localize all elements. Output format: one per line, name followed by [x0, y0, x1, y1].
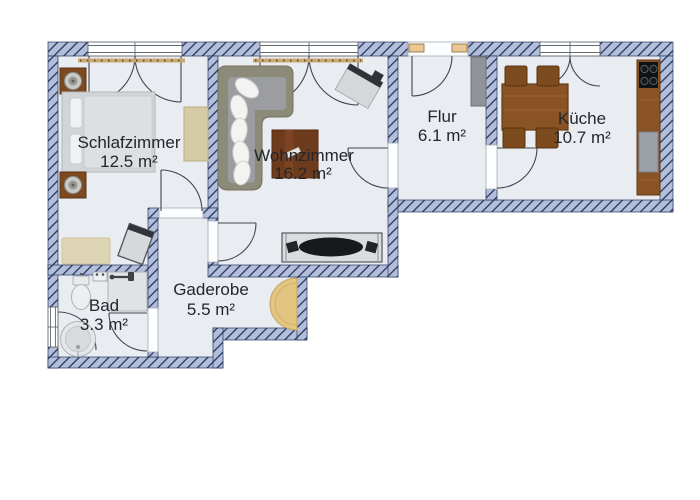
table-lamp-center [72, 80, 75, 83]
room-area-schlafzimmer: 12.5 m² [100, 152, 158, 171]
bathtub-drain [76, 345, 80, 349]
room-label-kueche: Küche [558, 109, 606, 128]
wash-basin [93, 272, 107, 281]
wall [213, 328, 223, 368]
wall [48, 42, 88, 56]
shower-fixture [128, 272, 134, 281]
burner [650, 65, 657, 72]
dining-chair [505, 66, 527, 86]
room-area-kueche: 10.7 m² [553, 128, 611, 147]
floor-plan: Schlafzimmer 12.5 m² Wohnzimmer 16.2 m² … [0, 0, 700, 500]
sink [639, 132, 658, 172]
tv [299, 238, 363, 257]
wall [660, 56, 673, 212]
room-label-bad: Bad [89, 296, 119, 315]
entrance-threshold-block [409, 44, 424, 52]
wall [388, 187, 398, 277]
wall [182, 42, 260, 56]
room-label-garderobe: Gaderobe [173, 280, 249, 299]
room-area-wohnzimmer: 16.2 m² [274, 164, 332, 183]
burner [641, 65, 648, 72]
wall [148, 208, 160, 218]
room-label-flur: Flur [427, 107, 457, 126]
door-opening-bad [148, 308, 158, 352]
wall [486, 56, 497, 147]
faucet-dot [102, 273, 105, 276]
room-area-flur: 6.1 m² [418, 126, 467, 145]
wall [208, 265, 398, 277]
dining-chair [537, 66, 559, 86]
entrance-threshold-block [452, 44, 467, 52]
room-label-schlafzimmer: Schlafzimmer [78, 133, 181, 152]
wall [468, 42, 540, 56]
wall [388, 56, 398, 145]
rug [62, 238, 110, 264]
wall [48, 357, 223, 368]
burner [641, 77, 648, 84]
door-opening-garderobe-wohnzimmer [208, 221, 218, 262]
toilet-button [80, 273, 82, 275]
room-area-garderobe: 5.5 m² [187, 300, 236, 319]
wall [600, 42, 673, 56]
room-label-wohnzimmer: Wohnzimmer [254, 146, 354, 165]
table-lamp-center [72, 184, 75, 187]
furniture-flur [471, 57, 486, 106]
shower-head-icon [110, 275, 115, 280]
wardrobe [471, 57, 486, 106]
door-opening-wohnzimmer-flur [388, 143, 398, 188]
floor-plan-page: Schlafzimmer 12.5 m² Wohnzimmer 16.2 m² … [0, 0, 700, 500]
toilet-tank [73, 276, 89, 285]
wall [297, 277, 307, 340]
room-area-bad: 3.3 m² [80, 315, 129, 334]
toilet [72, 285, 91, 310]
door-opening-schlafzimmer [159, 208, 203, 218]
door-opening-flur-kueche [486, 145, 497, 189]
wall [388, 200, 673, 212]
wall [358, 42, 408, 56]
pillow [70, 98, 82, 128]
wall [208, 56, 218, 208]
dining-chair [503, 128, 525, 148]
wall [202, 208, 218, 218]
faucet-dot [96, 273, 99, 276]
dresser [184, 107, 208, 161]
burner [650, 77, 657, 84]
